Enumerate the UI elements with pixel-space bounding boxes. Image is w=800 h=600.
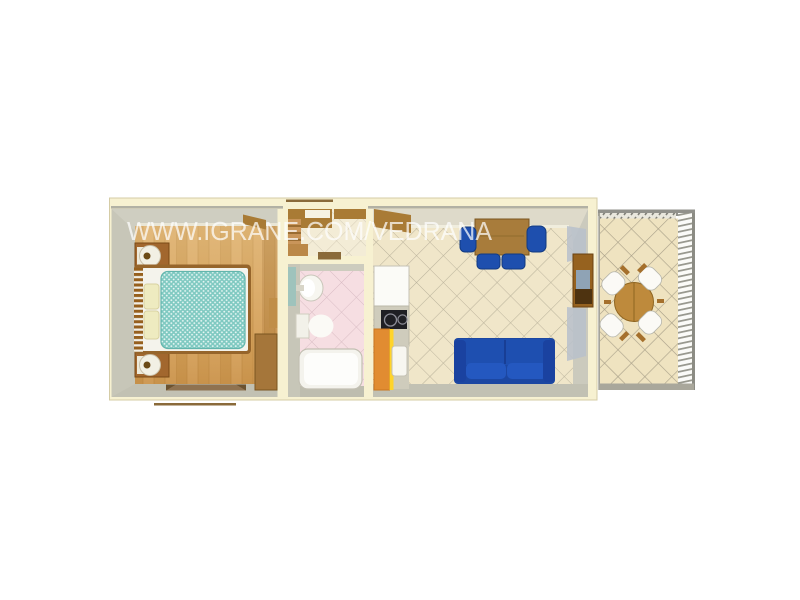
- svg-text:WWW.IGRANE.COM/VEDRANA: WWW.IGRANE.COM/VEDRANA: [127, 216, 493, 246]
